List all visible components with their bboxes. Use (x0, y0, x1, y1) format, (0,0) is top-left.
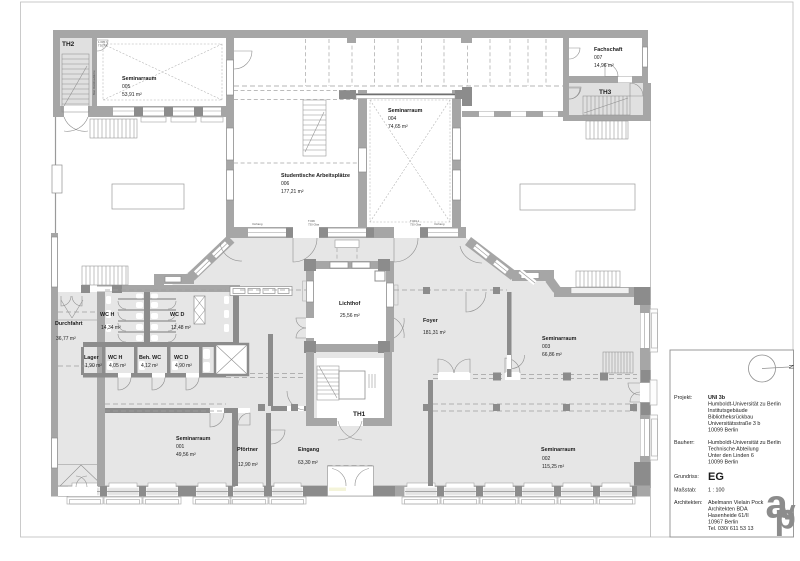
svg-text:Eingang: Eingang (298, 447, 319, 453)
svg-text:10967 Berlin: 10967 Berlin (708, 520, 738, 526)
svg-text:001: 001 (176, 444, 185, 450)
svg-text:730 Glas: 730 Glas (410, 223, 422, 227)
svg-text:WC H: WC H (108, 355, 122, 361)
svg-text:TH2: TH2 (62, 41, 75, 48)
svg-text:Abelmann Vielain Pock: Abelmann Vielain Pock (708, 500, 764, 506)
svg-text:Foyer: Foyer (423, 318, 439, 324)
svg-text:181,31 m²: 181,31 m² (423, 330, 446, 336)
svg-text:Projekt:: Projekt: (674, 395, 692, 401)
svg-text:005: 005 (122, 84, 131, 90)
svg-text:Tel. 030/ 611 53 13: Tel. 030/ 611 53 13 (708, 526, 753, 532)
svg-text:WC D: WC D (170, 312, 184, 318)
svg-text:1,90 m²: 1,90 m² (85, 363, 102, 369)
svg-text:p: p (775, 498, 796, 537)
svg-text:53,91 m²: 53,91 m² (122, 92, 142, 98)
svg-text:14,96 m²: 14,96 m² (594, 63, 614, 69)
svg-text:Mat. Rückbaufläche: Mat. Rückbaufläche (92, 70, 96, 95)
svg-text:Studentische Arbeitsplätze: Studentische Arbeitsplätze (281, 173, 350, 179)
svg-text:WC D: WC D (174, 355, 188, 361)
svg-text:003: 003 (542, 344, 551, 350)
svg-text:Hasenheide 61/II: Hasenheide 61/II (708, 513, 749, 519)
svg-text:63,30 m²: 63,30 m² (298, 460, 318, 466)
svg-text:Seminarraum: Seminarraum (176, 436, 211, 442)
svg-text:10099 Berlin: 10099 Berlin (708, 428, 738, 434)
svg-text:Lichthof: Lichthof (339, 301, 360, 307)
svg-text:Humboldt-Universität zu Berlin: Humboldt-Universität zu Berlin (708, 440, 781, 446)
svg-text:Vorhang: Vorhang (252, 222, 263, 226)
svg-text:74,65 m²: 74,65 m² (388, 124, 408, 130)
svg-text:T30 RS: T30 RS (98, 44, 108, 48)
svg-text:14,34 m²: 14,34 m² (101, 325, 121, 331)
svg-text:Seminarraum: Seminarraum (541, 447, 576, 453)
svg-text:EG: EG (708, 471, 724, 483)
svg-text:Maßstab:: Maßstab: (674, 488, 696, 494)
svg-text:4,05 m²: 4,05 m² (109, 363, 126, 369)
svg-text:TH1: TH1 (353, 411, 366, 418)
svg-text:177,21 m²: 177,21 m² (281, 189, 304, 195)
svg-text:Architekten:: Architekten: (674, 500, 702, 506)
svg-text:Seminarraum: Seminarraum (388, 108, 423, 114)
svg-text:N: N (787, 365, 793, 369)
svg-text:Universitätsstraße 3 b: Universitätsstraße 3 b (708, 421, 760, 427)
svg-text:4,90 m²: 4,90 m² (175, 363, 192, 369)
svg-text:Bauherr:: Bauherr: (674, 440, 695, 446)
svg-text:12,48 m²: 12,48 m² (171, 325, 191, 331)
svg-text:66,86 m²: 66,86 m² (542, 352, 562, 358)
svg-text:10099 Berlin: 10099 Berlin (708, 460, 738, 466)
svg-text:Technische Abteilung: Technische Abteilung (708, 447, 759, 453)
svg-text:002: 002 (542, 456, 551, 462)
svg-text:Vorhang: Vorhang (434, 222, 445, 226)
svg-text:Pförtner: Pförtner (237, 447, 259, 453)
svg-text:Lager: Lager (84, 355, 100, 361)
svg-text:12,90 m²: 12,90 m² (238, 462, 258, 468)
svg-text:4,12 m²: 4,12 m² (141, 363, 158, 369)
svg-text:Bibliotheksrückbau: Bibliotheksrückbau (708, 415, 753, 421)
svg-text:Seminarraum: Seminarraum (122, 76, 157, 82)
svg-text:Architekten BDA: Architekten BDA (708, 507, 748, 513)
svg-text:25,56 m²: 25,56 m² (340, 313, 360, 319)
svg-text:Institutsgebäude: Institutsgebäude (708, 408, 748, 414)
svg-text:1 : 100: 1 : 100 (708, 488, 725, 494)
svg-text:TH3: TH3 (599, 89, 612, 96)
svg-text:Durchfahrt: Durchfahrt (55, 321, 83, 327)
svg-text:UNI 3b: UNI 3b (708, 395, 726, 401)
svg-text:Fachschaft: Fachschaft (594, 47, 623, 53)
svg-text:WC H: WC H (100, 312, 114, 318)
svg-text:49,56 m²: 49,56 m² (176, 452, 196, 458)
svg-text:36,77 m²: 36,77 m² (56, 336, 76, 342)
svg-text:Unter den Linden 6: Unter den Linden 6 (708, 453, 754, 459)
svg-text:004: 004 (388, 116, 397, 122)
svg-text:730 Glas: 730 Glas (308, 223, 320, 227)
svg-text:Beh. WC: Beh. WC (139, 355, 161, 361)
svg-text:006: 006 (281, 181, 290, 187)
svg-text:Seminarraum: Seminarraum (542, 336, 577, 342)
svg-text:Humboldt-Universität zu Berlin: Humboldt-Universität zu Berlin (708, 402, 781, 408)
svg-text:115,25 m²: 115,25 m² (542, 464, 564, 470)
svg-text:Grundriss:: Grundriss: (674, 474, 699, 480)
svg-text:007: 007 (594, 55, 603, 61)
